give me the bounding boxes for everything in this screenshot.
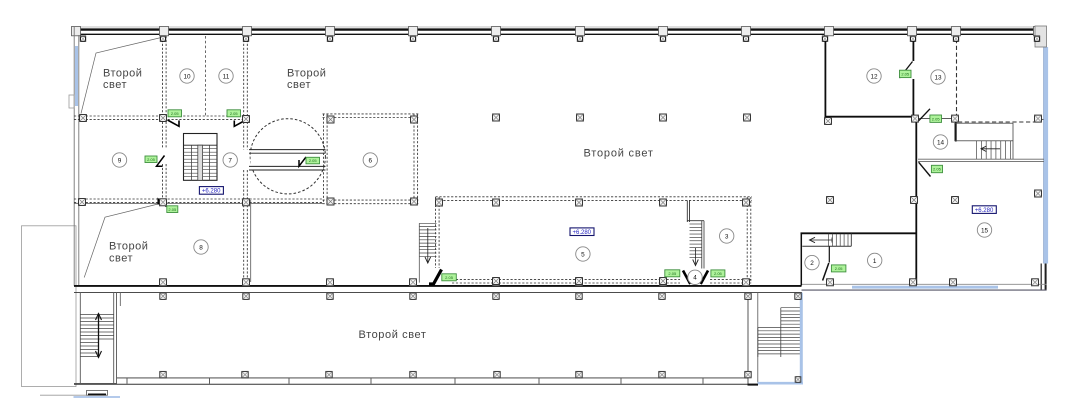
- svg-text:5: 5: [581, 251, 585, 258]
- svg-text:свет: свет: [109, 253, 133, 265]
- svg-text:свет: свет: [287, 79, 311, 91]
- svg-text:2.05: 2.05: [668, 271, 677, 276]
- svg-text:8: 8: [199, 244, 203, 251]
- svg-text:2.05: 2.05: [445, 275, 454, 280]
- svg-text:Второй свет: Второй свет: [584, 147, 654, 159]
- svg-text:2.05: 2.05: [933, 167, 942, 172]
- svg-text:1: 1: [873, 258, 877, 265]
- svg-text:4: 4: [693, 275, 697, 282]
- svg-text:2.05: 2.05: [230, 111, 239, 116]
- svg-text:10: 10: [183, 73, 191, 80]
- svg-text:2.05: 2.05: [171, 111, 180, 116]
- svg-text:2.05: 2.05: [168, 207, 177, 212]
- svg-text:+6.280: +6.280: [975, 208, 994, 214]
- svg-text:2.05: 2.05: [835, 266, 844, 271]
- svg-text:свет: свет: [103, 79, 127, 91]
- svg-text:+6.280: +6.280: [573, 230, 592, 236]
- svg-text:2.05: 2.05: [901, 72, 910, 77]
- svg-text:15: 15: [981, 227, 989, 234]
- svg-text:2: 2: [810, 260, 814, 267]
- svg-text:12: 12: [870, 73, 878, 80]
- svg-text:+6.280: +6.280: [202, 189, 221, 195]
- svg-text:2.05: 2.05: [714, 271, 723, 276]
- svg-text:6: 6: [369, 157, 373, 164]
- svg-text:Второй: Второй: [103, 68, 142, 80]
- svg-text:2.05: 2.05: [147, 157, 156, 162]
- svg-text:2.05: 2.05: [932, 116, 941, 121]
- svg-text:Второй: Второй: [287, 68, 326, 80]
- svg-text:3: 3: [725, 233, 729, 240]
- svg-text:14: 14: [937, 139, 945, 146]
- svg-text:7: 7: [228, 157, 232, 164]
- svg-text:2.05: 2.05: [309, 158, 318, 163]
- svg-text:11: 11: [223, 73, 230, 80]
- svg-text:Второй: Второй: [109, 241, 148, 253]
- svg-text:9: 9: [118, 157, 122, 164]
- svg-text:Второй свет: Второй свет: [359, 329, 427, 341]
- svg-text:13: 13: [934, 74, 942, 81]
